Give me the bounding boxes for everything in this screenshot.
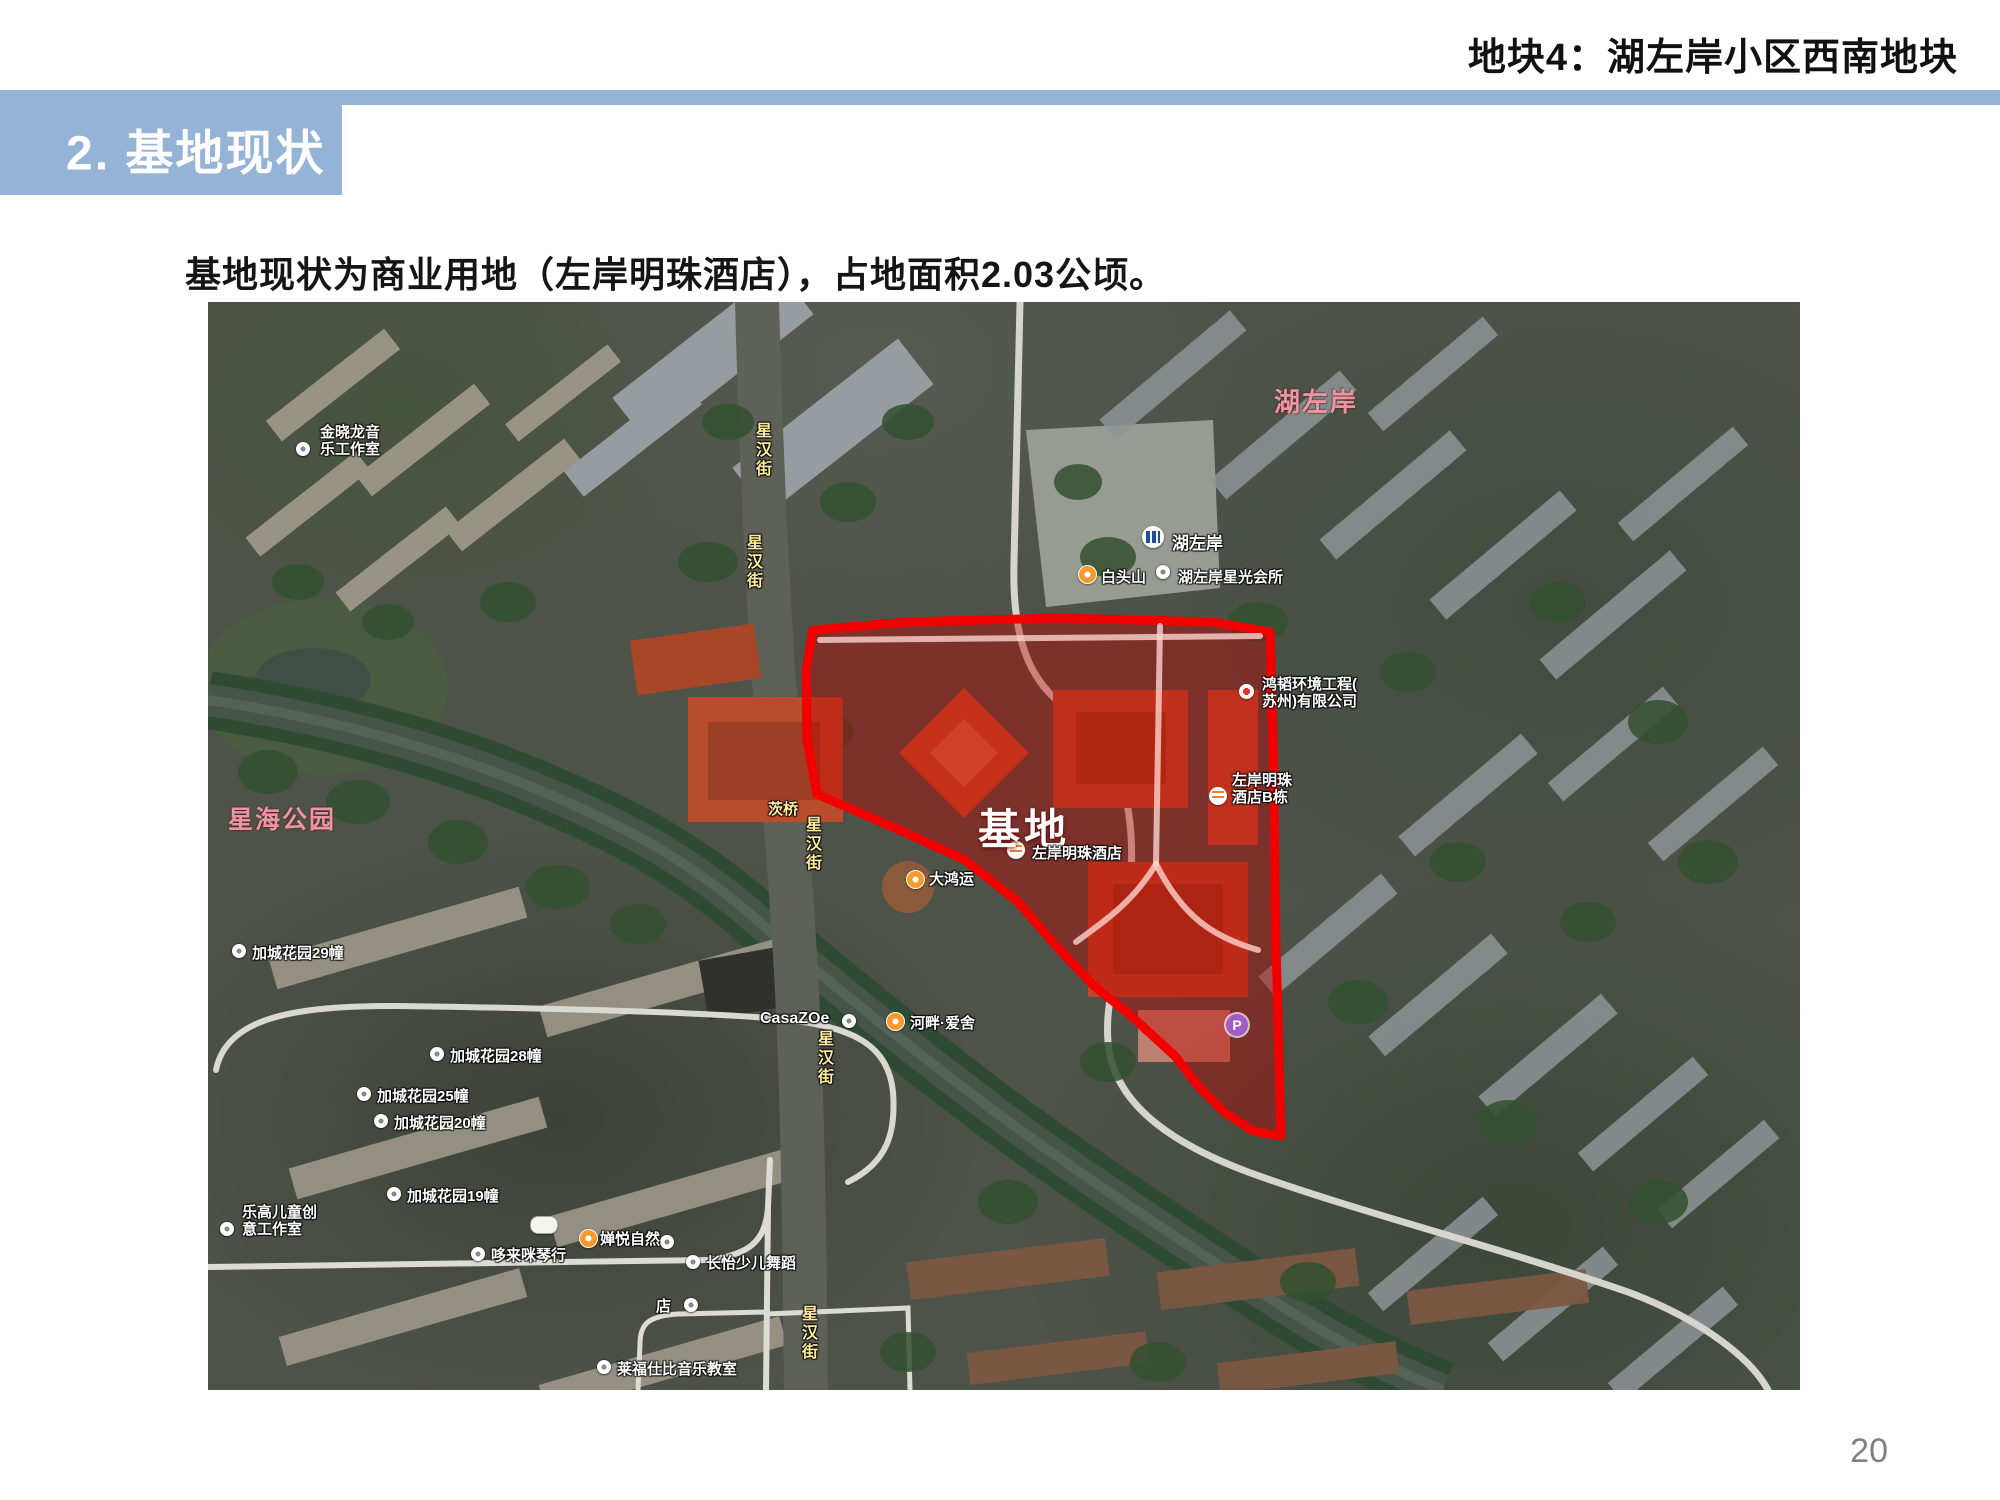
park-label-xinghai: 星海公园	[228, 800, 336, 836]
shop-label: 店	[656, 1295, 671, 1316]
dance-poi-icon	[686, 1255, 700, 1269]
road-label-xinghan-4: 星汉街	[811, 1030, 835, 1087]
bridge-label: 茨桥	[768, 798, 798, 819]
district-label-huzuoan: 湖左岸	[1274, 382, 1358, 419]
hotel-b-poi-icon	[1209, 787, 1227, 805]
accent-bar	[0, 90, 2000, 105]
casazoe-label: CasaZOe	[760, 1010, 829, 1028]
chanyue-label: 婵悦自然	[600, 1228, 660, 1249]
jc25-label: 加城花园25幢	[377, 1085, 469, 1106]
jc20-label: 加城花园20幢	[394, 1112, 486, 1133]
music-school-label: 莱福仕比音乐教室	[617, 1358, 737, 1379]
company-poi-icon	[1239, 684, 1254, 699]
baitoushan-poi-icon	[1078, 565, 1097, 584]
jc25-poi-icon	[357, 1087, 371, 1101]
club-label: 湖左岸星光会所	[1178, 566, 1283, 587]
jc28-poi-icon	[430, 1047, 444, 1061]
piano-label: 哆来咪琴行	[491, 1244, 566, 1265]
jc28-label: 加城花园28幢	[450, 1045, 542, 1066]
metro-station-label: 湖左岸	[1172, 529, 1223, 554]
road-number-badge-icon	[530, 1216, 558, 1234]
road-label-xinghan-5: 星汉街	[795, 1305, 819, 1362]
club-poi-icon	[1156, 565, 1170, 579]
shop-dot-icon	[684, 1298, 698, 1312]
riverside-poi-icon	[886, 1012, 905, 1031]
slide: 地块4：湖左岸小区西南地块 2. 基地现状 基地现状为商业用地（左岸明珠酒店），…	[0, 0, 2000, 1500]
dahongyun-label: 大鸿运	[929, 868, 974, 889]
parking-icon: P	[1226, 1014, 1248, 1036]
chanyue-poi-icon	[579, 1229, 598, 1248]
metro-station-icon	[1142, 526, 1164, 548]
dance-label: 长怡少儿舞蹈	[706, 1252, 796, 1273]
jc19-poi-icon	[387, 1187, 401, 1201]
chanyue-dot-icon	[660, 1235, 674, 1249]
baitoushan-label: 白头山	[1101, 566, 1146, 587]
lego-poi-icon	[220, 1222, 234, 1236]
hotel-label: 左岸明珠酒店	[1032, 842, 1122, 863]
jc19-label: 加城花园19幢	[407, 1185, 499, 1206]
hotel-b-label: 左岸明珠 酒店B栋	[1232, 772, 1292, 806]
section-title: 2. 基地现状	[66, 114, 325, 184]
jc20-poi-icon	[374, 1114, 388, 1128]
music-school-poi-icon	[597, 1360, 611, 1374]
lego-label: 乐高儿童创 意工作室	[242, 1204, 317, 1238]
jc29-label: 加城花园29幢	[252, 942, 344, 963]
piano-poi-icon	[471, 1247, 485, 1261]
riverside-label: 河畔·爱舍	[910, 1012, 975, 1033]
page-number: 20	[1850, 1432, 1888, 1471]
site-boundary-polygon	[806, 618, 1281, 1136]
music-studio-poi-icon	[296, 442, 310, 456]
slide-kicker: 地块4：湖左岸小区西南地块	[1468, 26, 1958, 81]
satellite-map: 湖左岸 星海公园 基地 星汉街 星汉街 星汉街 星汉街 星汉街 茨桥 湖左岸 白…	[208, 302, 1800, 1390]
road-label-xinghan-3: 星汉街	[799, 816, 823, 873]
casazoe-dot-icon	[842, 1014, 856, 1028]
body-text: 基地现状为商业用地（左岸明珠酒店），占地面积2.03公顷。	[185, 246, 1166, 298]
section-title-box: 2. 基地现状	[0, 105, 342, 195]
jc29-poi-icon	[232, 944, 246, 958]
dahongyun-poi-icon	[906, 870, 925, 889]
road-label-xinghan-2: 星汉街	[740, 534, 764, 591]
music-studio-label: 金晓龙音 乐工作室	[320, 424, 380, 458]
road-label-xinghan-1: 星汉街	[749, 422, 773, 479]
company-label: 鸿韬环境工程( 苏州)有限公司	[1262, 676, 1357, 710]
